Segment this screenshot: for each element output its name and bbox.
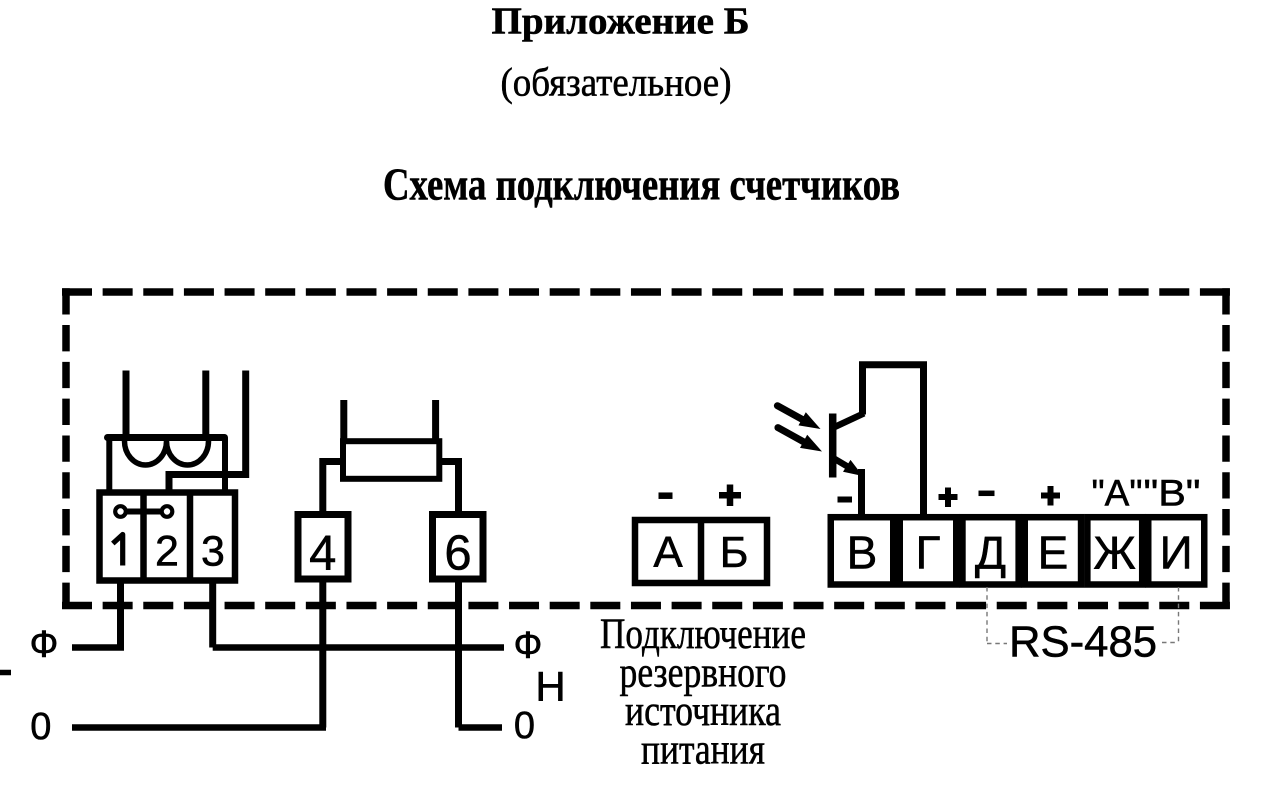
svg-text:6: 6	[444, 527, 471, 581]
svg-text:"А": "А"	[1092, 473, 1143, 514]
svg-text:Д: Д	[975, 527, 1006, 579]
svg-text:"В": "В"	[1144, 473, 1201, 514]
svg-text:Схема подключения счетчиков: Схема подключения счетчиков	[383, 160, 900, 210]
svg-text:RS-485: RS-485	[1009, 618, 1157, 667]
svg-text:питания: питания	[641, 727, 765, 774]
svg-text:0: 0	[514, 705, 535, 747]
svg-text:Ж: Ж	[1093, 527, 1135, 579]
svg-text:А: А	[653, 528, 683, 577]
svg-text:Ф: Ф	[514, 625, 543, 667]
svg-text:4: 4	[309, 527, 336, 581]
svg-text:3: 3	[201, 528, 225, 576]
svg-text:И: И	[1160, 527, 1193, 579]
svg-text:Ф: Ф	[30, 624, 59, 666]
svg-text:Е: Е	[1038, 527, 1069, 579]
svg-text:Г: Г	[916, 527, 941, 579]
svg-text:Приложение Б: Приложение Б	[492, 1, 750, 43]
svg-text:(обязательное): (обязательное)	[501, 60, 732, 105]
svg-text:В: В	[847, 527, 878, 579]
svg-text:Б: Б	[720, 528, 749, 577]
svg-text:2: 2	[155, 528, 179, 576]
svg-text:Н: Н	[535, 663, 565, 710]
svg-text:0: 0	[30, 706, 51, 748]
